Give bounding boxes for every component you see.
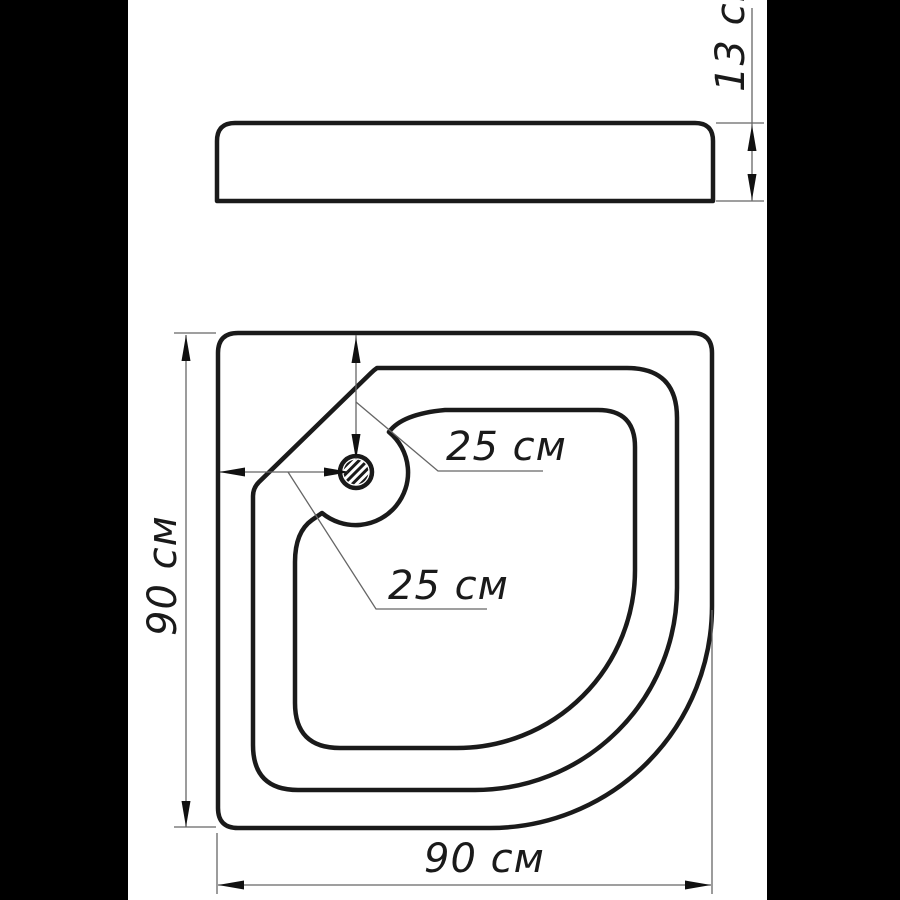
plan-width-label: 90 см — [424, 836, 545, 882]
side-height-label: 13 см — [708, 0, 754, 92]
drawing-page: 13 см 90 см 90 см 25 см 25 см — [0, 0, 900, 900]
drain-offset-vertical-label: 25 см — [446, 424, 567, 470]
blueprint-canvas: 13 см 90 см 90 см 25 см 25 см — [0, 0, 900, 900]
plan-height-label: 90 см — [140, 515, 186, 636]
drain-offset-horizontal-label: 25 см — [388, 563, 509, 609]
